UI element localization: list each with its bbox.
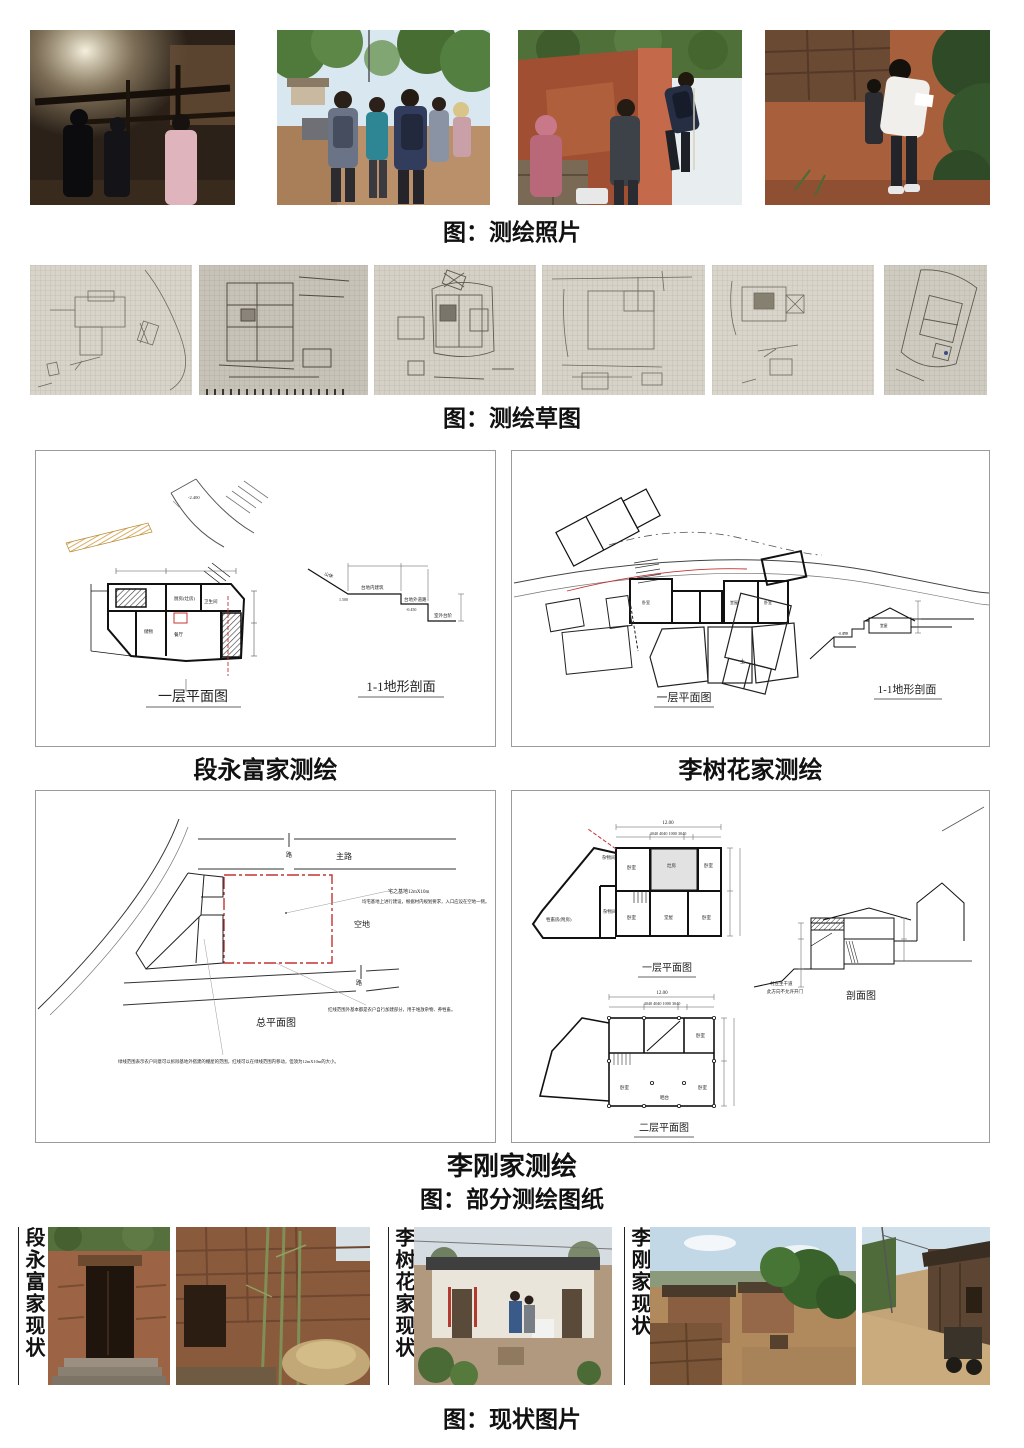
caption-duan: 段永富家测绘 [35,750,496,785]
floor1-room-0: 杂物间 [602,854,616,861]
site-note-build: 均宅基地上进行建设，根据村内规划要求，入口应设在空地一侧。 [362,898,489,905]
current-photo-lishuhua [414,1227,612,1385]
site-main-road-label: 主路 [336,851,352,861]
survey-photo-wall-measuring [518,30,742,205]
site-road-char-top: 路 [286,851,292,859]
label-ligang-current: 李刚家现状 [624,1227,649,1385]
caption-ligang: 李刚家测绘 [0,1146,1024,1183]
duan-section-label: 1-1地形剖面 [366,679,435,694]
duan-plan-label: 一层平面图 [158,690,228,705]
floor1-room-4: 牲畜房(附房) [546,916,572,923]
current-photo-duan-1 [48,1227,170,1385]
floor2-room-2: 卧室 [698,1084,707,1091]
duan-room-bathroom: 卫生间 [204,598,218,605]
current-photo-ligang-1 [650,1227,856,1385]
current-photo-duan-2 [176,1227,370,1385]
floor2-dim-total: 12.00 [656,991,668,996]
svg-text:堂屋: 堂屋 [730,599,738,605]
svg-text:1.500: 1.500 [339,597,348,602]
duan-note-outer: 台地外道路 [404,596,427,603]
floor2-dims: 4040 4040 1000 3040 [644,1001,681,1006]
duan-drawing: -2.400 [36,451,495,746]
photo-art-group [277,30,490,205]
section-red-note: 此方向不允许开门 [767,988,803,995]
sketch-art-5 [712,265,874,395]
floor2-room-3: 晒台 [660,1094,669,1101]
photo-art-ligang-road [862,1227,990,1385]
floor1-room-6: 卧室 [627,914,636,921]
lishuhua-soil-char: 土 [740,658,745,665]
floor1-room-3: 卧室 [704,862,713,869]
site-note-greenline: 绿线范围表示农户同意可以拆除基地外搭建的棚屋的范围，红线可以在绿线范围内移动，但… [118,1058,339,1065]
floor2-room-1: 卧室 [620,1084,629,1091]
photo-art-wall [518,30,742,205]
survey-sketch-4 [542,265,705,395]
svg-text:卧室: 卧室 [642,599,650,605]
duan-room-dining: 餐厅 [174,631,183,638]
svg-text:-0.450: -0.450 [406,607,416,612]
site-road-char-bottom: 路 [356,979,362,987]
caption-survey-drawings: 图：部分测绘图纸 [0,1180,1024,1214]
section-road-note: 村庄主干道 [770,980,793,987]
duan-note-steps: 室外台阶 [434,612,452,619]
survey-sketch-6 [884,265,987,395]
svg-text:-0.450: -0.450 [838,632,848,636]
lishuhua-drawing: 卧室 堂屋 卧室 土 一层平面图 [512,451,989,746]
ligang-site-drawing: 路 主路 空地 路 [36,791,495,1142]
floor1-room-7: 堂屋 [664,914,673,921]
section-label: 剖面图 [846,989,876,1002]
photo-art-notetaking [765,30,990,205]
label-duan-current: 段永富家现状 [18,1227,43,1385]
survey-sketch-2 [199,265,368,395]
site-note-size: 宅之基地12mX10m [388,888,430,895]
sketch-art-1 [30,265,192,395]
floor1-dim-total: 12.00 [662,821,674,826]
duan-room-storage: 储物 [144,628,153,635]
floor1-room-1: 卧室 [627,864,636,871]
floor1-room-5: 杂物间 [603,908,617,915]
caption-current-photos: 图：现状图片 [0,1400,1024,1434]
floor1-label: 一层平面图 [642,962,692,974]
drawing-frame-lishuhua: 卧室 堂屋 卧室 土 一层平面图 [511,450,990,747]
photo-art-lishuhua-courtyard [414,1227,612,1385]
current-photo-ligang-2 [862,1227,990,1385]
site-plan-label: 总平面图 [256,1016,296,1029]
floor2-room-0: 卧室 [696,1032,705,1039]
report-page: 图：测绘照片 [0,0,1024,1448]
drawing-frame-ligang-site: 路 主路 空地 路 [35,790,496,1143]
drawing-frame-duan: -2.400 [35,450,496,747]
photo-art-duan-doorway [48,1227,170,1385]
floor1-room-8: 卧室 [702,914,711,921]
lishuhua-plan-label: 一层平面图 [657,691,712,704]
duan-note-mountain: 山体 [323,570,334,580]
caption-survey-photos: 图：测绘照片 [0,213,1024,247]
duan-room-kitchen: 厨房(灶房) [174,595,195,602]
photo-art-ligang-village [650,1227,856,1385]
sketch-art-3 [374,265,536,395]
sketch-art-2 [199,265,368,395]
svg-text:堂屋: 堂屋 [880,623,888,628]
survey-sketch-3 [374,265,536,395]
caption-survey-sketches: 图：测绘草图 [0,399,1024,433]
sketch-art-6 [884,265,987,395]
drawing-frame-ligang-plans: 12.00 4040 4040 1000 3040 杂物间 卧室 灶房 卧室 牲… [511,790,990,1143]
lishuhua-section-label: 1-1地形剖面 [878,682,937,696]
site-empty-lot-label: 空地 [354,919,370,929]
survey-photo-notetaking [765,30,990,205]
photo-art-interior [30,30,235,205]
svg-text:-2.400: -2.400 [188,495,200,500]
floor2-label: 二层平面图 [639,1122,689,1134]
floor1-dims: 4040 4040 1000 3040 [650,831,687,836]
duan-note-inner: 台地内建筑 [361,584,384,591]
survey-sketch-1 [30,265,192,395]
site-note-redline: 红线范围外基本都是农户自行加建部分，用于堆放杂物、养牲畜。 [328,1006,455,1013]
survey-photo-group [277,30,490,205]
ligang-plans-drawing: 12.00 4040 4040 1000 3040 杂物间 卧室 灶房 卧室 牲… [512,791,989,1142]
sketch-art-4 [542,265,705,395]
photo-art-duan-wall-bamboo [176,1227,370,1385]
label-lishuhua-current: 李树花家现状 [388,1227,413,1385]
floor1-room-2: 灶房 [667,862,676,869]
survey-photo-interior [30,30,235,205]
caption-lishuhua: 李树花家测绘 [511,750,990,785]
survey-sketch-5 [712,265,874,395]
